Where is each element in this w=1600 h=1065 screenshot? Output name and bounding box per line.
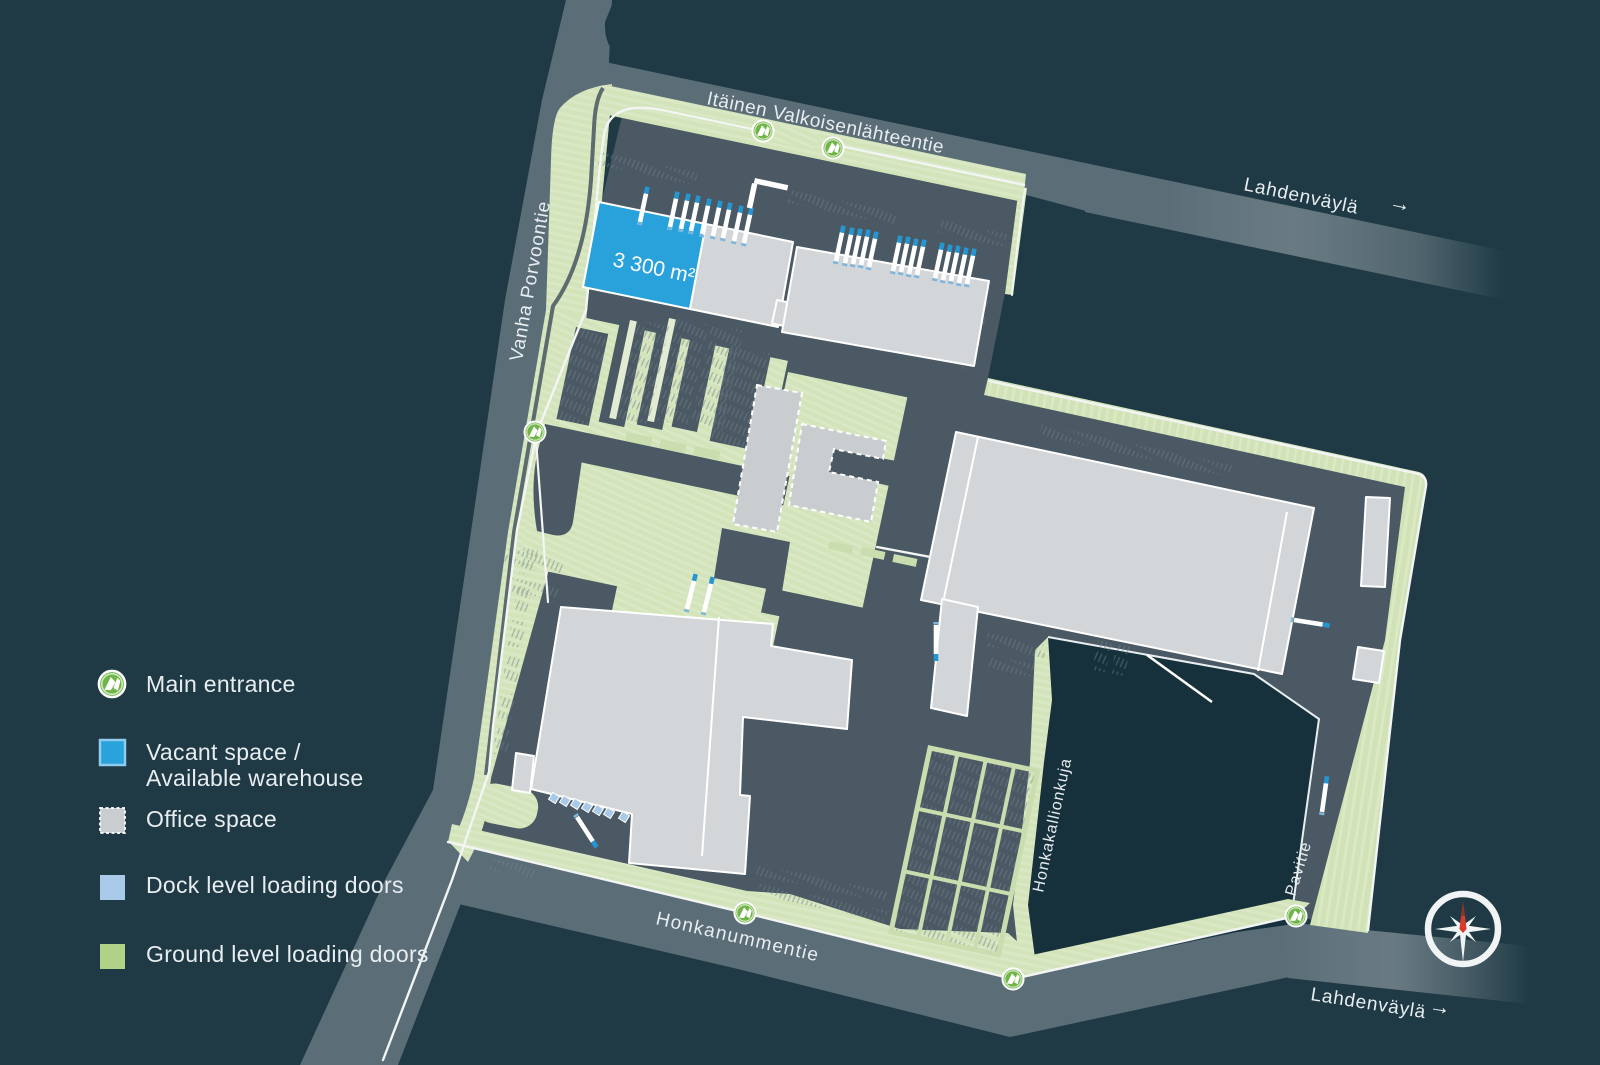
svg-text:Dock level loading doors: Dock level loading doors xyxy=(146,872,404,898)
svg-text:Vacant space /: Vacant space / xyxy=(146,739,301,765)
svg-text:Available warehouse: Available warehouse xyxy=(146,765,364,791)
svg-text:Office space: Office space xyxy=(146,806,277,832)
svg-text:Main entrance: Main entrance xyxy=(146,671,296,697)
svg-text:Ground level loading doors: Ground level loading doors xyxy=(146,941,429,967)
svg-text:→: → xyxy=(1427,992,1453,1020)
